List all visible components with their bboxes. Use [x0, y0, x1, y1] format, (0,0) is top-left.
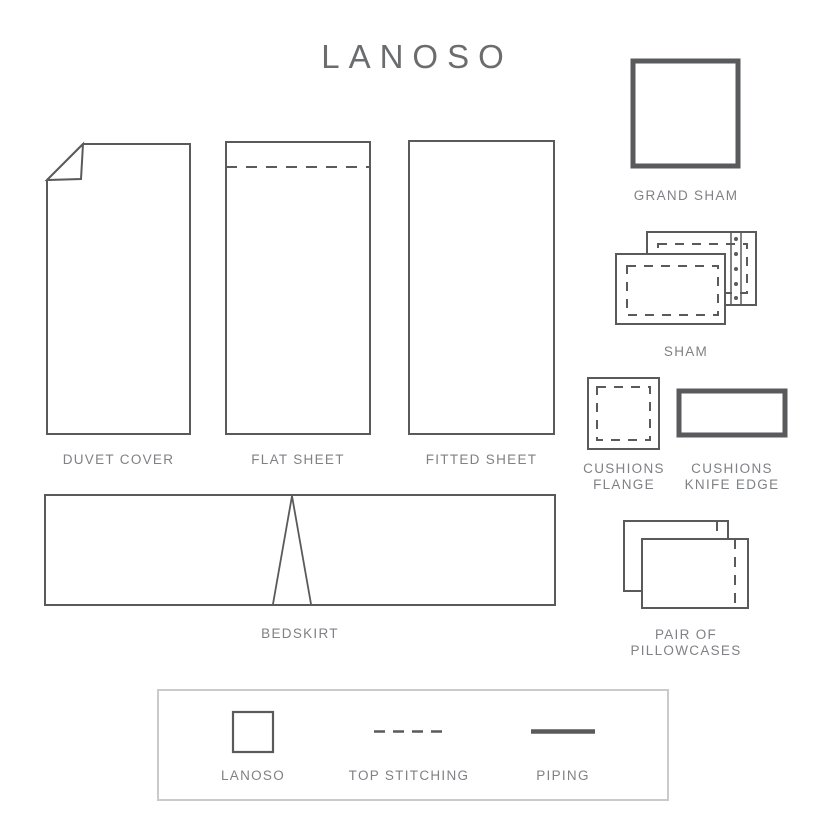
fitted-sheet-label: FITTED SHEET	[409, 452, 554, 468]
cushions-flange-shape	[588, 378, 659, 449]
fitted-sheet-shape	[409, 141, 554, 434]
sham-shape	[616, 232, 756, 324]
diagram-canvas: LANOSO DUVET COVER FLAT SHEET FITTED SHE…	[0, 0, 825, 825]
cushions-knife-edge-label: CUSHIONS KNIFE EDGE	[670, 461, 794, 493]
bedskirt-label: BEDSKIRT	[45, 626, 555, 642]
legend-lanoso-label: LANOSO	[203, 768, 303, 784]
sham-front	[616, 254, 725, 324]
duvet-fold-corner	[47, 144, 83, 180]
grand-sham-shape	[633, 61, 738, 166]
sham-label: SHAM	[611, 344, 761, 360]
flat-sheet-label: FLAT SHEET	[226, 452, 370, 468]
legend-lanoso-swatch	[233, 712, 273, 752]
legend-top-stitching-label: TOP STITCHING	[344, 768, 474, 784]
duvet-cover-label: DUVET COVER	[40, 452, 197, 468]
flat-sheet-shape	[226, 142, 370, 434]
pillowcase-front	[642, 539, 748, 608]
pillowcases-shape	[624, 521, 748, 608]
pillowcases-label: PAIR OF PILLOWCASES	[611, 627, 761, 659]
cushions-flange-label: CUSHIONS FLANGE	[564, 461, 684, 493]
bedding-diagram-shapes	[0, 0, 825, 825]
brand-title: LANOSO	[0, 38, 825, 76]
legend-piping-label: PIPING	[513, 768, 613, 784]
cushions-knife-edge-shape	[679, 391, 785, 435]
bedskirt-shape	[45, 495, 555, 605]
duvet-cover-shape	[47, 144, 190, 434]
grand-sham-label: GRAND SHAM	[611, 188, 761, 204]
